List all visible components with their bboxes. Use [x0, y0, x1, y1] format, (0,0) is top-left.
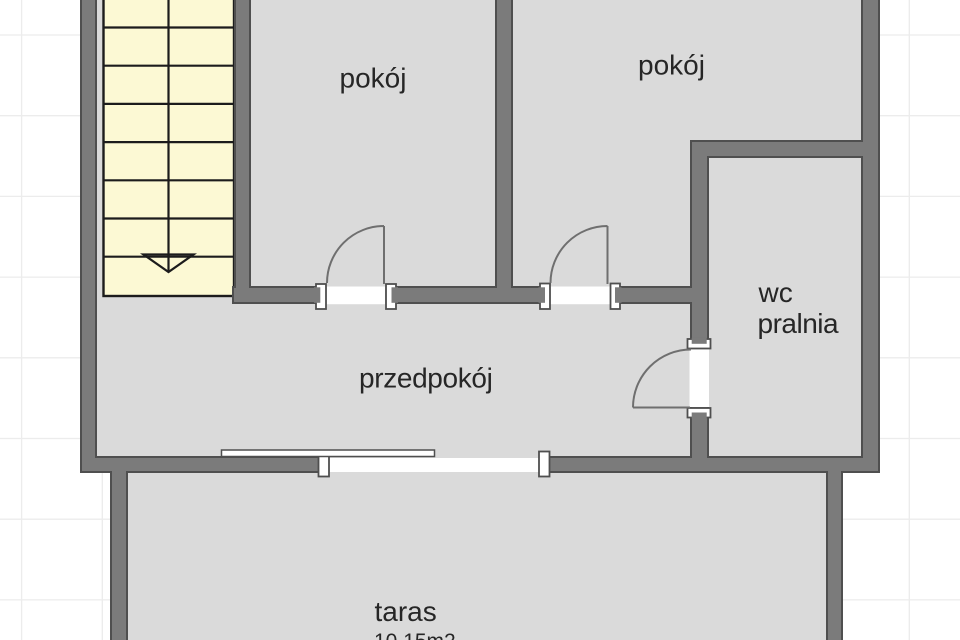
- svg-text:wc: wc: [758, 277, 793, 308]
- svg-text:taras: taras: [375, 596, 437, 627]
- svg-text:pralnia: pralnia: [758, 308, 839, 339]
- svg-text:przedpokój: przedpokój: [359, 363, 492, 394]
- svg-text:pokój: pokój: [340, 63, 407, 94]
- svg-text:pokój: pokój: [638, 50, 705, 81]
- svg-text:10,15m2: 10,15m2: [374, 630, 456, 640]
